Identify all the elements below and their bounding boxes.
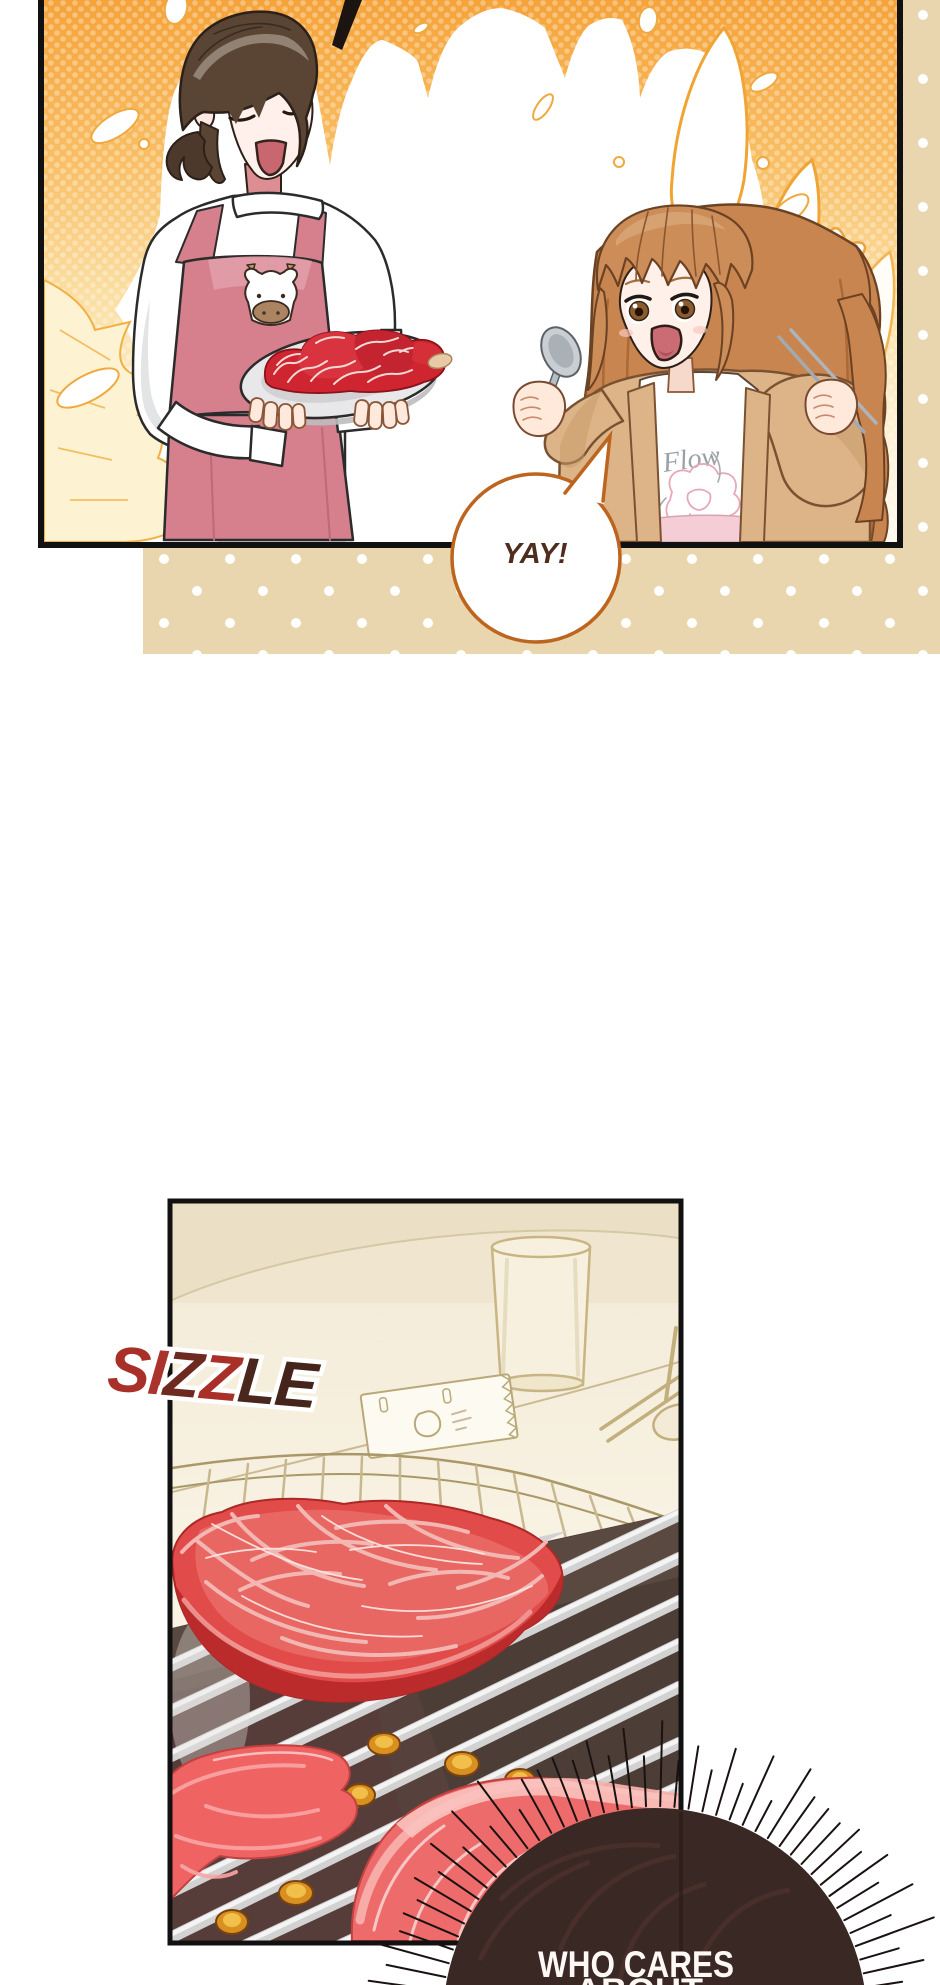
svg-text:YAY!: YAY! — [503, 538, 568, 570]
svg-text:ABOUT: ABOUT — [575, 1972, 703, 1985]
